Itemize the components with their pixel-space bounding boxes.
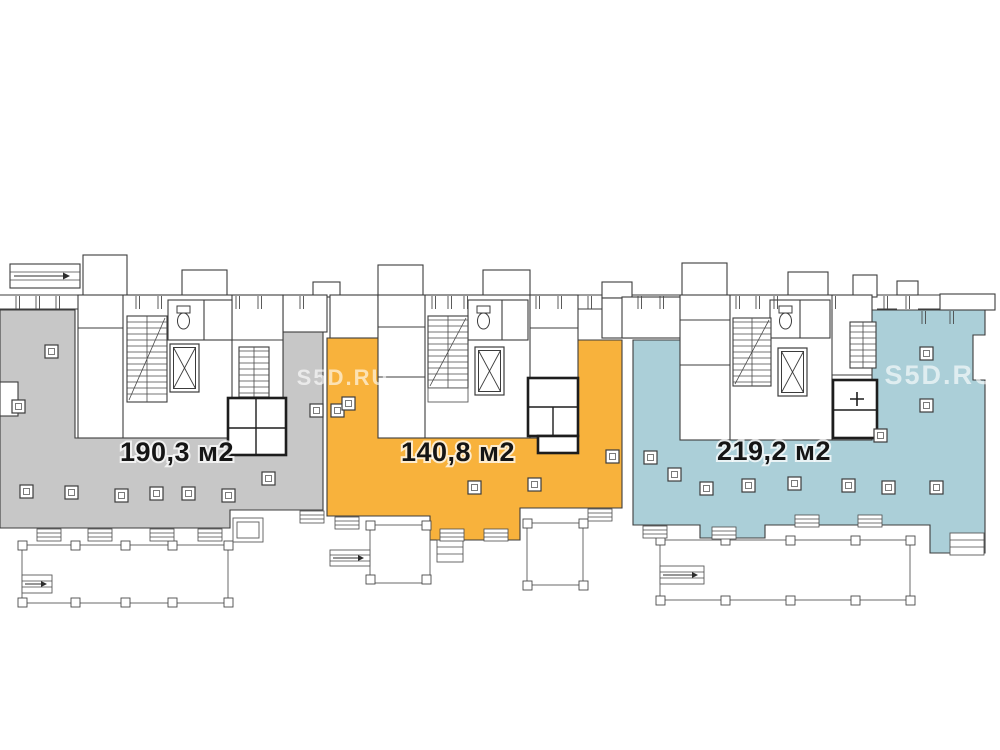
area-label-middle: 140,8 м2 <box>401 437 515 467</box>
toilet-icon <box>477 306 490 329</box>
area-label-right: 219,2 м2 <box>717 436 831 466</box>
annex-room <box>682 263 727 297</box>
staircase <box>850 322 876 368</box>
elevator-shaft <box>475 347 504 395</box>
terrace <box>233 518 263 542</box>
annex-room <box>940 294 995 310</box>
staircase <box>127 316 167 402</box>
staircase <box>428 316 468 402</box>
entry-steps <box>437 540 463 562</box>
elevator-shaft <box>778 348 807 396</box>
staircase <box>733 318 771 386</box>
annex-room <box>483 270 530 297</box>
entrance-ramp <box>10 264 80 288</box>
annex-room <box>788 272 828 297</box>
watermark: S5D.RU <box>884 360 995 390</box>
entry-steps <box>950 533 984 555</box>
toilet-icon <box>177 306 190 329</box>
annex-room <box>83 255 127 297</box>
terrace <box>366 521 431 584</box>
annex-room <box>897 281 918 295</box>
terrace <box>18 541 233 607</box>
watermark: S5D.RU <box>297 365 390 390</box>
annex-room <box>330 295 378 338</box>
toilet-icon <box>779 306 792 329</box>
annex-room <box>622 297 682 338</box>
elevator-shaft <box>170 344 199 392</box>
stair-core-middle <box>378 295 578 453</box>
terrace <box>523 519 588 590</box>
utility-shaft-rooms <box>228 398 286 455</box>
annex-room <box>853 275 877 297</box>
annex-room <box>602 282 632 298</box>
area-label-left: 190,3 м2 <box>120 437 234 467</box>
stair-core-right <box>680 295 877 440</box>
staircase <box>239 347 269 397</box>
terrace-ramp <box>22 575 52 593</box>
utility-shaft-rooms <box>833 380 877 438</box>
floor-plan: 190,3 м2 140,8 м2 219,2 м2 S5D.RU S5D.RU <box>0 0 1000 750</box>
floor-plan-page: 190,3 м2 140,8 м2 219,2 м2 S5D.RU S5D.RU <box>0 0 1000 750</box>
stair-core-left <box>78 295 286 455</box>
terrace <box>656 536 915 605</box>
annex-room <box>378 265 423 297</box>
terrace-ramp <box>330 550 370 566</box>
annex-room <box>283 295 327 332</box>
annex-room <box>182 270 227 298</box>
terrace-ramp <box>660 566 704 584</box>
